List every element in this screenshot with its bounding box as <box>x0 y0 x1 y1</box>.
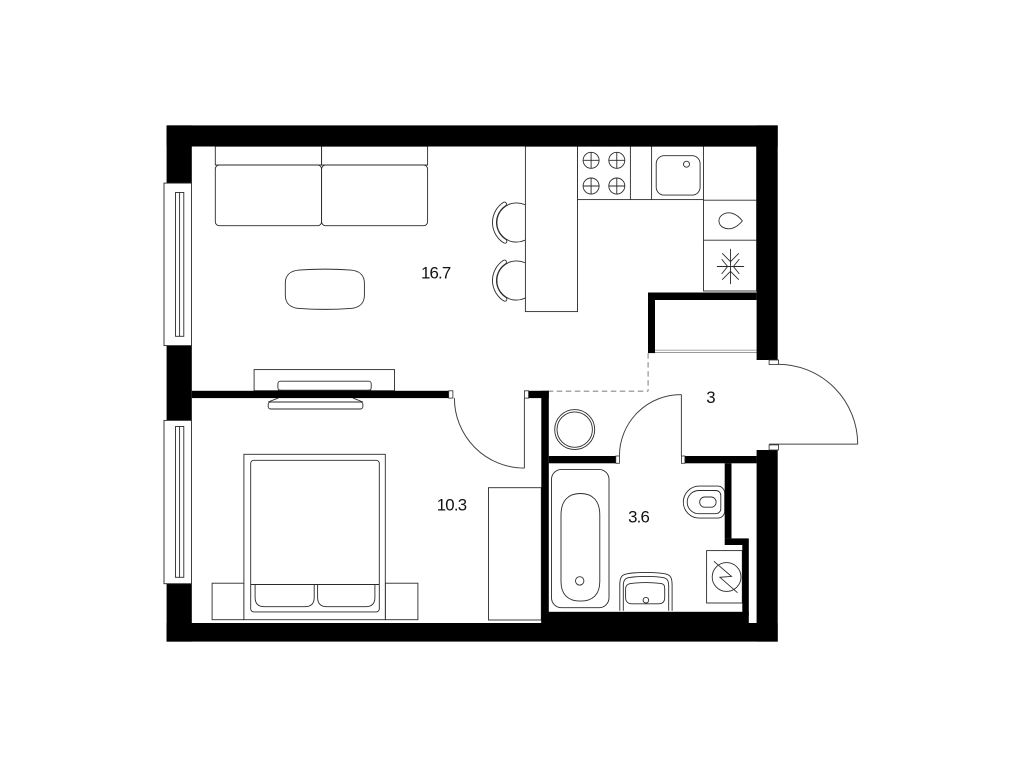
svg-text:16.7: 16.7 <box>421 264 451 283</box>
svg-text:10.3: 10.3 <box>437 496 467 515</box>
svg-text:3: 3 <box>706 388 715 407</box>
svg-text:3.6: 3.6 <box>628 507 649 526</box>
